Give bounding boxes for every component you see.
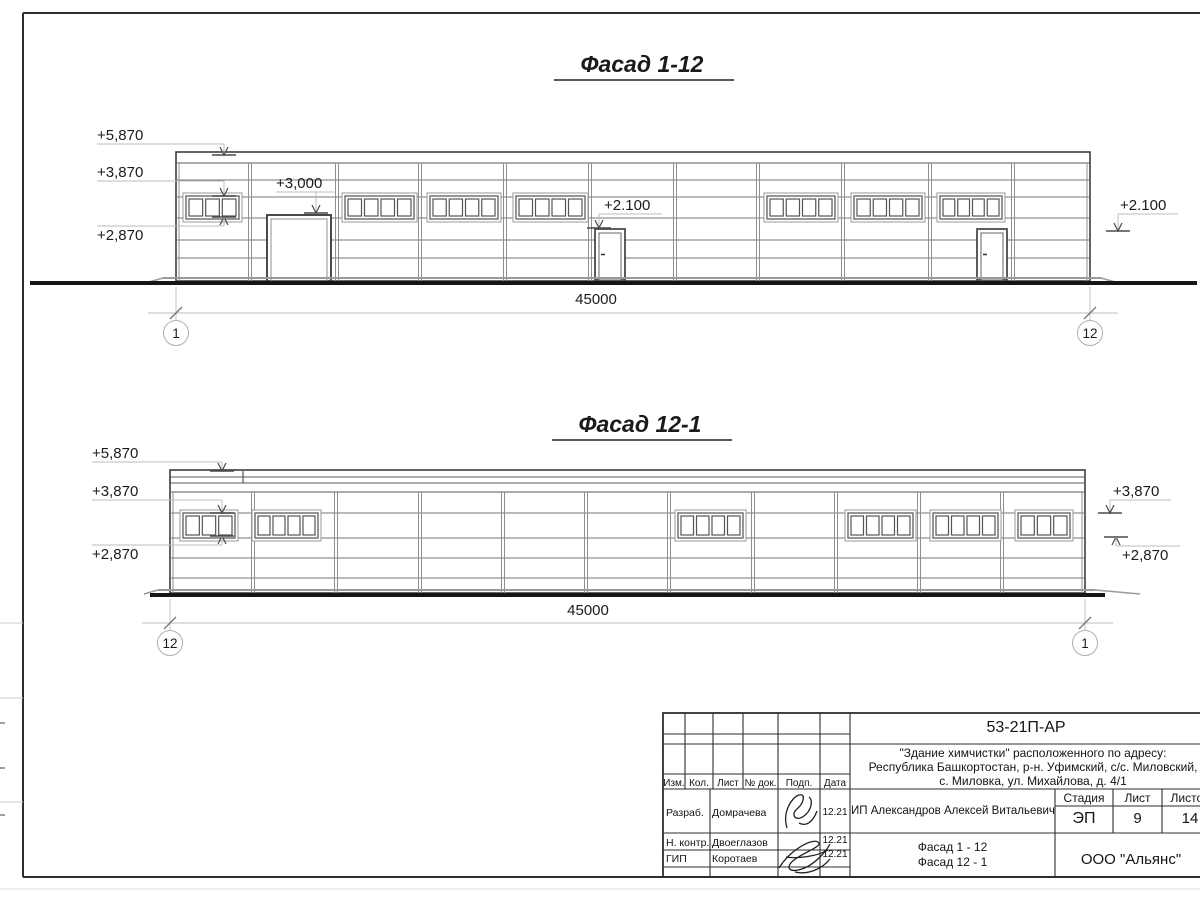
window-pane [882,516,895,535]
window [930,510,1001,541]
window [675,510,746,541]
elevation-mark: +5,870 [92,445,234,471]
elevation-label: +2.100 [1120,197,1166,214]
window-pane [1054,516,1067,535]
row-date-gip: 12.21 [820,849,850,861]
window-pane [936,516,949,535]
window-pane [1021,516,1034,535]
elevation-label: +5,870 [92,445,138,462]
col-header-kol: Кол. [685,778,713,790]
window-pane [906,199,919,216]
col-header-data: Дата [820,778,850,790]
window-pane [987,199,999,216]
elevation-label: +3,870 [97,164,143,181]
window-pane [273,516,285,535]
window-pane [952,516,965,535]
elevation-mark: +3,870 [1098,483,1171,513]
window-pane [712,516,725,535]
window-pane [819,199,832,216]
window [764,193,838,222]
window-pane [206,199,220,216]
window-pane [536,199,550,216]
sheet-number-value: 9 [1114,810,1161,827]
elevation-label: +2,870 [97,227,143,244]
elevation-mark: +2,870 [1104,537,1180,564]
project-address-line-3: с. Миловка, ул. Михайлова, д. 4/1 [852,775,1200,789]
col-header-doc: № док. [743,778,778,790]
grid-axis-number: 12 [1082,326,1097,341]
row-name-ncontrol: Двоеглазов [712,837,768,849]
sheet-title-line-2: Фасад 12 - 1 [851,856,1054,870]
project-address-line-2: Республика Башкортостан, р-н. Уфимский, … [852,761,1200,775]
window-pane [433,199,446,216]
window-pane [973,199,985,216]
window-pane [186,516,199,535]
row-name-developer: Домрачева [712,807,766,819]
row-date-ncontrol: 12.21 [820,835,850,847]
stage-header: Стадия [1056,792,1112,806]
dimension: 45000112 [148,287,1118,346]
col-header-list: Лист [713,778,743,790]
window-pane [851,516,864,535]
grid-axis-number: 12 [162,636,177,651]
window-pane [967,516,980,535]
window-pane [466,199,479,216]
facade-title: Фасад 1-12 [581,51,704,77]
window [252,510,321,541]
gate-door [267,215,331,281]
window-pane [958,199,970,216]
window-pane [258,516,270,535]
window-pane [449,199,462,216]
sheets-total-header: Листов [1163,792,1200,806]
elevation-mark: +5,870 [97,127,236,155]
window-pane [219,516,232,535]
facade-12-1: Фасад 12-1+5,870+3,870+2,870+3,870+2,870… [92,411,1180,656]
window-pane [303,516,315,535]
window-pane [482,199,495,216]
doc-number: 53-21П-АР [852,719,1200,737]
row-role-gip: ГИП [666,853,687,865]
project-address-line-1: "Здание химчистки" расположенного по адр… [852,747,1200,761]
grid-bubble: 12 [158,599,183,656]
window-pane [697,516,710,535]
window-pane [222,199,236,216]
sheet-header: Лист [1114,792,1161,806]
grid-bubble: 1 [164,287,189,346]
signature [786,795,817,828]
grid-axis-number: 1 [172,326,180,341]
window [427,193,501,222]
stage-value: ЭП [1056,810,1112,828]
dimension-label: 45000 [567,602,609,619]
elevation-label: +3,870 [92,483,138,500]
row-role-developer: Разраб. [666,807,704,819]
elevation-mark: +2.100 [1106,197,1178,231]
elevation-label: +3,000 [276,175,322,192]
elevation-label: +2,870 [1122,547,1168,564]
window-pane [681,516,694,535]
row-role-ncontrol: Н. контр. [666,837,709,849]
window-pane [365,199,379,216]
window-pane [519,199,533,216]
window-pane [569,199,583,216]
grid-axis-number: 1 [1081,636,1089,651]
drawing-sheet: Фасад 1-12+5,870+3,870+2,870+3,000+2.100… [0,0,1200,900]
window-pane [943,199,955,216]
dimension-label: 45000 [575,291,617,308]
elevation-label: +3,870 [1113,483,1159,500]
col-header-izm: Изм. [663,778,685,790]
window-pane [381,199,395,216]
elevation-label: +2,870 [92,546,138,563]
window [342,193,417,222]
window-pane [348,199,362,216]
window-pane [202,516,215,535]
door [595,229,625,280]
window-pane [728,516,741,535]
window-pane [873,199,886,216]
facade-1-12: Фасад 1-12+5,870+3,870+2,870+3,000+2.100… [30,51,1197,346]
window-pane [803,199,816,216]
window-pane [288,516,300,535]
window-pane [786,199,799,216]
window-pane [552,199,566,216]
sheets-total-value: 14 [1163,810,1200,827]
row-name-gip: Коротаев [712,853,757,865]
window-pane [770,199,783,216]
client-name: ИП Александров Алексей Витальевич [851,805,1054,818]
grid-bubble: 12 [1078,287,1103,346]
elevation-label: +2.100 [604,197,650,214]
dimension: 45000121 [142,599,1113,656]
window-pane [983,516,996,535]
sheet-title-line-1: Фасад 1 - 12 [851,841,1054,855]
window-pane [867,516,880,535]
window [937,193,1005,222]
window [1015,510,1073,541]
window-pane [398,199,412,216]
window [513,193,588,222]
window [845,510,916,541]
col-header-podp: Подп. [778,778,820,790]
window [851,193,925,222]
window-pane [1037,516,1050,535]
facade-title: Фасад 12-1 [579,411,702,437]
window-pane [189,199,203,216]
row-date-developer: 12.21 [820,807,850,819]
window-pane [898,516,911,535]
grid-bubble: 1 [1073,599,1098,656]
window-pane [890,199,903,216]
door [977,229,1007,280]
company-name: ООО "Альянс" [1056,851,1200,868]
window-pane [857,199,870,216]
elevation-label: +5,870 [97,127,143,144]
